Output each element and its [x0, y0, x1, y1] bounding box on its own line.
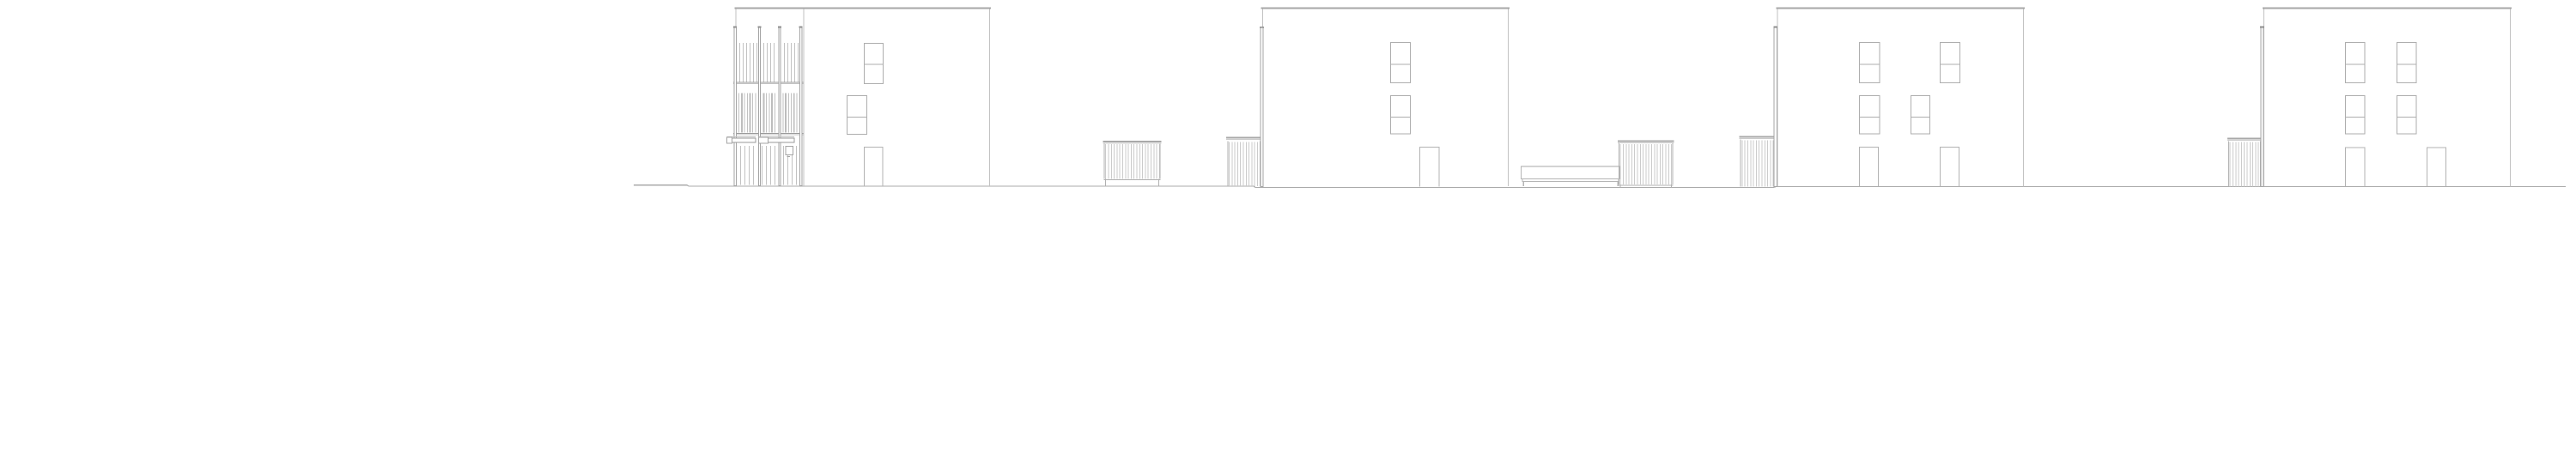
fence-tall-post-cap [2260, 27, 2264, 28]
street-elevation-drawing [0, 0, 2576, 453]
screen-post [799, 27, 802, 186]
slat [785, 94, 787, 133]
fence-tall-post [2261, 27, 2263, 187]
slat [750, 94, 751, 133]
building-2 [1261, 9, 1510, 187]
door [865, 148, 884, 187]
fence-5 [2227, 27, 2264, 187]
window [1391, 42, 1411, 82]
fence-tall-post-cap [1773, 27, 1777, 28]
window-frame [2397, 42, 2417, 82]
window-frame [1860, 96, 1880, 135]
window [1391, 96, 1411, 135]
building-outline [1262, 9, 1508, 186]
balcony-end-cap [727, 137, 732, 143]
screen-post-cap [778, 27, 781, 28]
window [2397, 96, 2417, 135]
building-1 [735, 9, 992, 187]
window [2397, 42, 2417, 82]
slat [793, 94, 795, 133]
door [1419, 148, 1439, 187]
building-outline [736, 9, 990, 186]
screen-post [758, 27, 760, 186]
door [1860, 148, 1879, 187]
window-frame [1391, 96, 1411, 135]
door [2427, 148, 2446, 186]
slat-band [739, 94, 797, 133]
low-wall-body [1522, 166, 1620, 179]
slat-band [740, 43, 799, 82]
slatted-screen-building-1 [727, 27, 804, 186]
building-outline [1777, 9, 2024, 187]
building-4 [2263, 9, 2512, 187]
window-frame [1940, 42, 1959, 82]
slat [741, 94, 743, 133]
window [865, 44, 884, 84]
fence-2 [1226, 27, 1264, 187]
building-3 [1777, 9, 2026, 187]
window-frame [1911, 96, 1930, 135]
window-frame [2346, 42, 2366, 82]
window-frame [848, 95, 867, 134]
fence-tall-post [1261, 27, 1263, 186]
slat [771, 94, 773, 133]
window [1860, 42, 1880, 82]
building-outline [2264, 9, 2511, 187]
window-frame [2346, 96, 2366, 135]
ground-line [634, 185, 2566, 188]
screen-post [779, 27, 781, 186]
slat [763, 94, 765, 133]
fence-3 [1618, 142, 1674, 188]
low-wall-base [1522, 179, 1619, 182]
screen-post [734, 27, 736, 186]
window-frame [2397, 96, 2417, 135]
low-wall [1522, 166, 1620, 186]
window [1940, 42, 1959, 82]
screen-post-cap [799, 27, 803, 28]
window [1911, 96, 1930, 135]
elevation-canvas [0, 0, 2576, 453]
balcony-bar [727, 137, 756, 143]
fence-1 [1103, 142, 1161, 187]
window-frame [1391, 42, 1411, 82]
balcony-bar [759, 137, 795, 143]
fence-tall-post-cap [1260, 27, 1264, 28]
screen-post-cap [758, 27, 762, 28]
door [1940, 148, 1959, 187]
window [2346, 96, 2366, 135]
screen-detail-box [786, 147, 793, 155]
screen-post-cap [733, 27, 737, 28]
fence-tall-post [1774, 27, 1777, 187]
window-frame [865, 44, 884, 84]
door [2346, 148, 2365, 186]
fence-4 [1740, 27, 1778, 187]
window [2346, 42, 2366, 82]
window-frame [1860, 42, 1880, 82]
window [1860, 96, 1880, 135]
balcony-end-cap [759, 137, 769, 143]
window [848, 95, 867, 134]
